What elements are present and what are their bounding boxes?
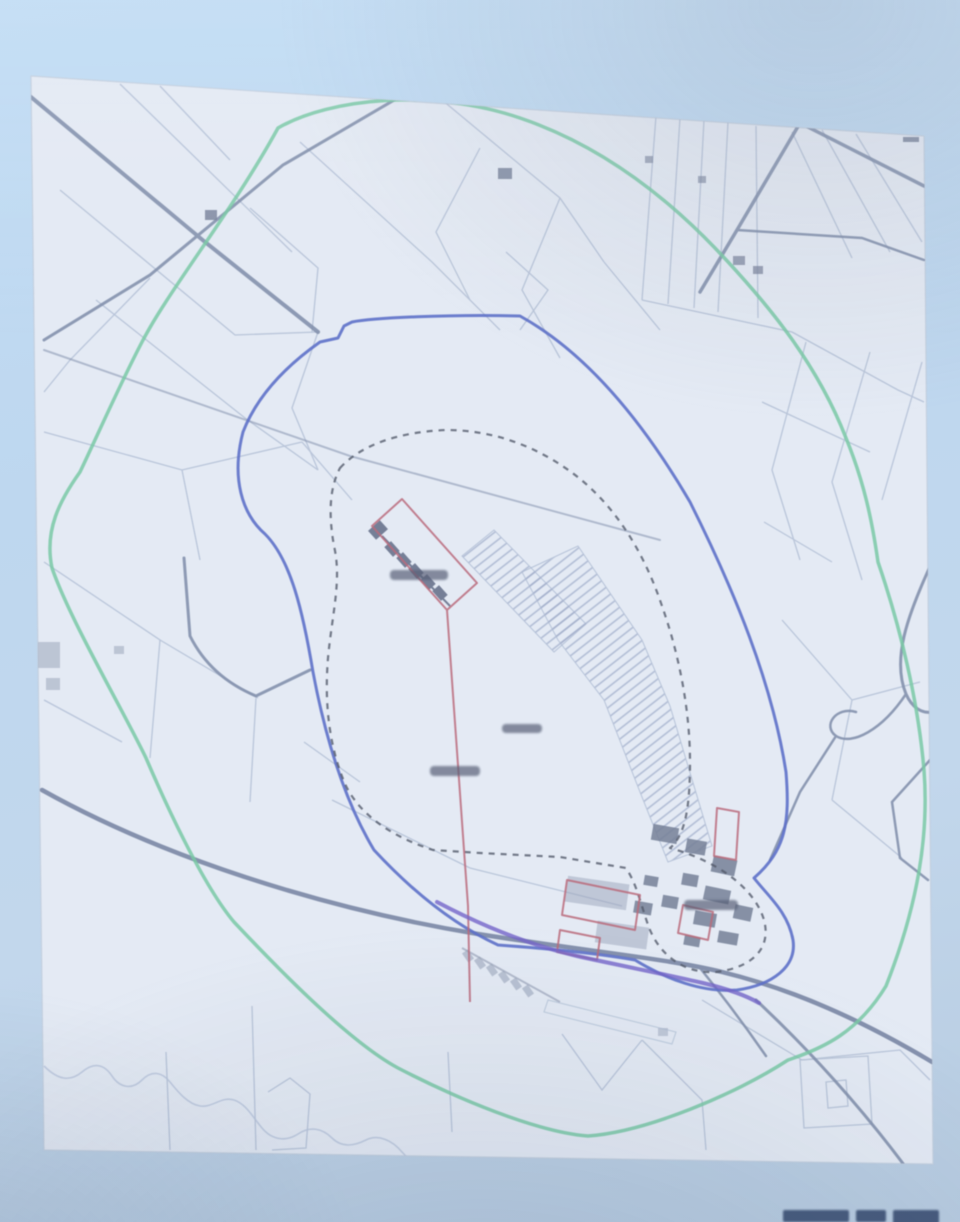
wash-overlay — [31, 76, 933, 1164]
caption-word-smudge — [856, 1210, 886, 1222]
cadastral-map — [0, 0, 960, 1222]
caption-word-smudge — [893, 1210, 939, 1222]
caption-word-smudge — [783, 1210, 849, 1222]
cutoff-caption-smudge — [783, 1210, 939, 1222]
projected-map-photo — [0, 0, 960, 1222]
